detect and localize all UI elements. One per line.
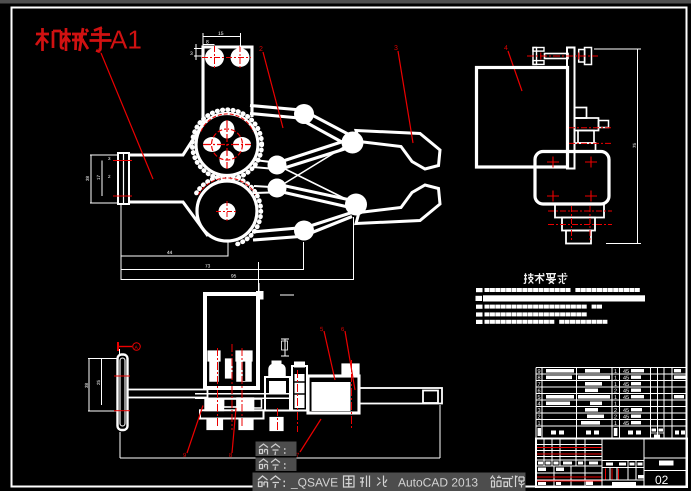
svg-text:3: 3 [190,51,193,57]
svg-text:45: 45 [623,369,629,375]
svg-text:8: 8 [537,376,540,382]
svg-text:38: 38 [85,175,90,181]
svg-text:A1: A1 [110,25,142,55]
svg-text:2: 2 [614,389,617,395]
svg-text:45: 45 [623,408,629,414]
svg-text:45: 45 [623,421,629,427]
svg-text:5: 5 [537,395,540,401]
svg-text:6: 6 [537,389,540,395]
svg-text:8: 8 [206,40,209,46]
svg-text:44: 44 [167,250,173,256]
svg-text:15: 15 [218,31,224,37]
svg-text:1: 1 [537,421,540,427]
svg-text:45: 45 [623,389,629,395]
svg-text:1: 1 [614,376,617,382]
svg-text:02: 02 [655,473,669,487]
svg-text:_QSAVE: _QSAVE [290,476,338,490]
svg-text:2: 2 [614,415,617,421]
svg-text:4: 4 [504,45,508,52]
svg-text:2: 2 [537,415,540,421]
svg-text:45: 45 [623,395,629,401]
svg-text:17: 17 [96,174,101,180]
svg-text:2: 2 [614,408,617,414]
svg-text:73: 73 [205,264,211,270]
svg-text:45: 45 [623,415,629,421]
svg-text:4: 4 [537,402,540,408]
svg-text:45: 45 [623,376,629,382]
svg-text:1: 1 [614,395,617,401]
svg-text:25: 25 [96,379,101,385]
svg-text:75: 75 [632,142,637,148]
svg-text:3: 3 [537,408,540,414]
svg-text:1: 1 [614,421,617,427]
svg-text:1: 1 [614,402,617,408]
svg-text:38: 38 [84,382,89,388]
svg-text:3: 3 [394,45,398,52]
svg-text:1: 1 [614,369,617,375]
svg-text:9: 9 [537,369,540,375]
svg-text:7: 7 [537,382,540,388]
svg-text:2: 2 [259,46,263,53]
svg-text:1: 1 [614,382,617,388]
svg-text:95: 95 [231,273,237,279]
svg-text:45: 45 [623,382,629,388]
svg-text:AutoCAD 2013: AutoCAD 2013 [398,476,478,490]
